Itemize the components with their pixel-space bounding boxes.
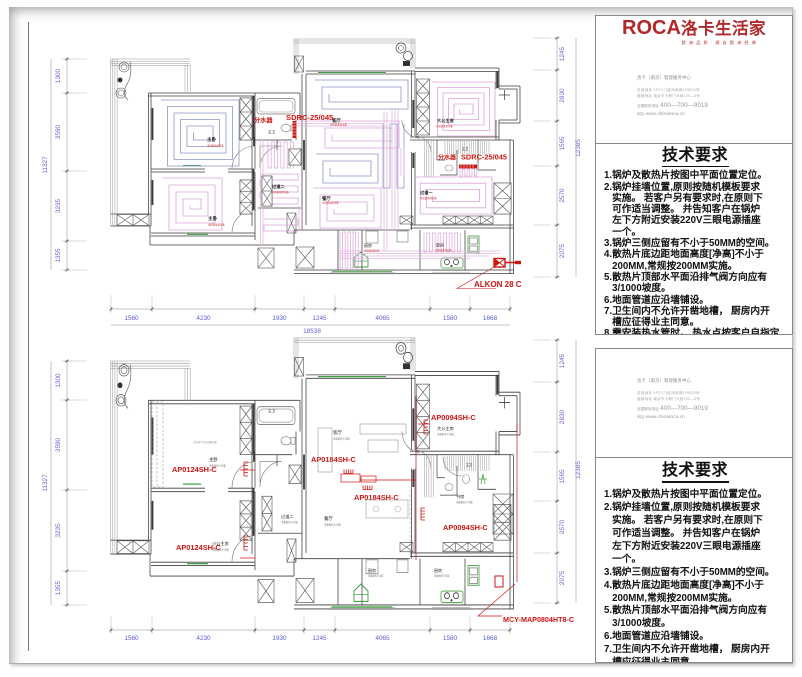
svg-text:地采暖盘管采暖: 地采暖盘管采暖 [364,249,380,253]
svg-text:客厅: 客厅 [333,429,342,436]
svg-text:1355: 1355 [55,580,62,595]
svg-text:1560: 1560 [124,315,139,322]
svg-text:地采暖盘管采暖: 地采暖盘管采暖 [436,124,453,128]
svg-text:18538: 18538 [303,328,321,335]
svg-text:地采暖盘管采暖: 地采暖盘管采暖 [420,196,437,200]
svg-text:SDRC-25/045: SDRC-25/045 [461,153,507,162]
svg-text:主卧室平面布置图采暖: 主卧室平面布置图采暖 [193,440,218,444]
svg-text:厨房: 厨房 [364,242,372,248]
svg-text:地采暖盘管采暖: 地采暖盘管采暖 [322,201,339,205]
svg-text:2830: 2830 [559,88,566,103]
svg-text:大公主房: 大公主房 [437,117,454,124]
svg-text:采暖散热片采暖: 采暖散热片采暖 [333,437,350,441]
svg-text:小公主房: 小公主房 [212,540,229,547]
svg-text:采暖散热片采暖: 采暖散热片采暖 [434,574,450,578]
svg-text:2570: 2570 [559,188,566,203]
svg-text:厨房: 厨房 [434,567,442,573]
svg-text:大公主房: 大公主房 [437,425,454,432]
svg-text:厨房: 厨房 [368,567,376,573]
svg-text:11327: 11327 [42,474,49,492]
svg-text:2570: 2570 [559,519,566,534]
svg-text:厨房: 厨房 [436,242,444,248]
svg-text:采暖散热片采暖: 采暖散热片采暖 [456,500,473,504]
svg-text:3590: 3590 [55,124,62,139]
svg-text:主卫: 主卫 [466,462,473,467]
svg-text:AP0094SH-C: AP0094SH-C [443,523,488,532]
svg-text:餐厅: 餐厅 [324,515,333,522]
svg-text:主卧: 主卧 [208,215,218,222]
svg-text:过道二: 过道二 [281,513,294,520]
svg-text:1930: 1930 [272,635,287,642]
svg-text:1580: 1580 [443,315,458,322]
svg-text:1668: 1668 [483,315,498,322]
svg-text:采暖散热片采暖: 采暖散热片采暖 [437,432,454,436]
svg-text:1245: 1245 [559,46,566,61]
svg-text:地采暖盘管采暖: 地采暖盘管采暖 [272,190,289,194]
svg-text:1668: 1668 [483,635,498,642]
svg-text:2075: 2075 [559,570,566,585]
svg-text:1930: 1930 [272,315,287,322]
svg-text:2830: 2830 [559,409,566,424]
svg-text:主卫: 主卫 [268,408,276,413]
svg-text:1355: 1355 [55,248,62,263]
svg-text:分水器: 分水器 [254,117,273,125]
svg-text:ALKON 28 C: ALKON 28 C [474,280,522,289]
svg-text:AP0094SH-C: AP0094SH-C [431,413,476,422]
svg-text:地采暖盘管采暖: 地采暖盘管采暖 [330,123,347,127]
svg-text:1560: 1560 [124,635,139,642]
svg-text:采暖散热片采暖: 采暖散热片采暖 [212,548,229,552]
svg-text:1565: 1565 [559,136,566,151]
svg-text:4065: 4065 [375,315,390,322]
svg-text:SDRC-25/045: SDRC-25/045 [286,113,334,122]
svg-text:1245: 1245 [312,635,327,642]
svg-text:3590: 3590 [55,437,62,452]
svg-text:MCY-MAP0804HT8-C: MCY-MAP0804HT8-C [503,615,574,624]
svg-text:1300: 1300 [55,373,62,388]
svg-text:主卫: 主卫 [268,129,276,134]
svg-text:1245: 1245 [312,315,327,322]
svg-text:主卫: 主卫 [462,146,469,151]
svg-text:4230: 4230 [196,315,211,322]
svg-text:1565: 1565 [559,469,566,484]
svg-text:采暖散热片采暖: 采暖散热片采暖 [324,523,341,527]
svg-text:11327: 11327 [42,156,49,174]
svg-text:书房: 书房 [456,493,464,500]
svg-text:主卧: 主卧 [207,136,217,143]
svg-text:地采暖盘管采暖: 地采暖盘管采暖 [436,248,452,252]
svg-text:1245: 1245 [559,353,566,368]
svg-text:4230: 4230 [196,635,211,642]
svg-text:3235: 3235 [55,198,62,213]
svg-text:1300: 1300 [55,68,62,83]
svg-text:采暖散热片采暖: 采暖散热片采暖 [368,574,384,578]
svg-text:主卧: 主卧 [209,456,218,463]
svg-text:2075: 2075 [559,243,566,258]
svg-text:4065: 4065 [375,635,390,642]
svg-text:过道二: 过道二 [272,183,285,190]
svg-text:地采暖盘管采暖: 地采暖盘管采暖 [207,144,224,148]
svg-text:地采暖盘管采暖: 地采暖盘管采暖 [208,223,225,227]
svg-text:AP0184SH-C: AP0184SH-C [354,493,399,502]
svg-text:3235: 3235 [55,523,62,538]
svg-text:采暖散热片采暖: 采暖散热片采暖 [281,520,298,524]
svg-text:过道一: 过道一 [420,189,433,196]
svg-text:1580: 1580 [443,635,458,642]
svg-text:采暖散热片采暖: 采暖散热片采暖 [209,464,226,468]
svg-text:分水器: 分水器 [438,154,457,162]
